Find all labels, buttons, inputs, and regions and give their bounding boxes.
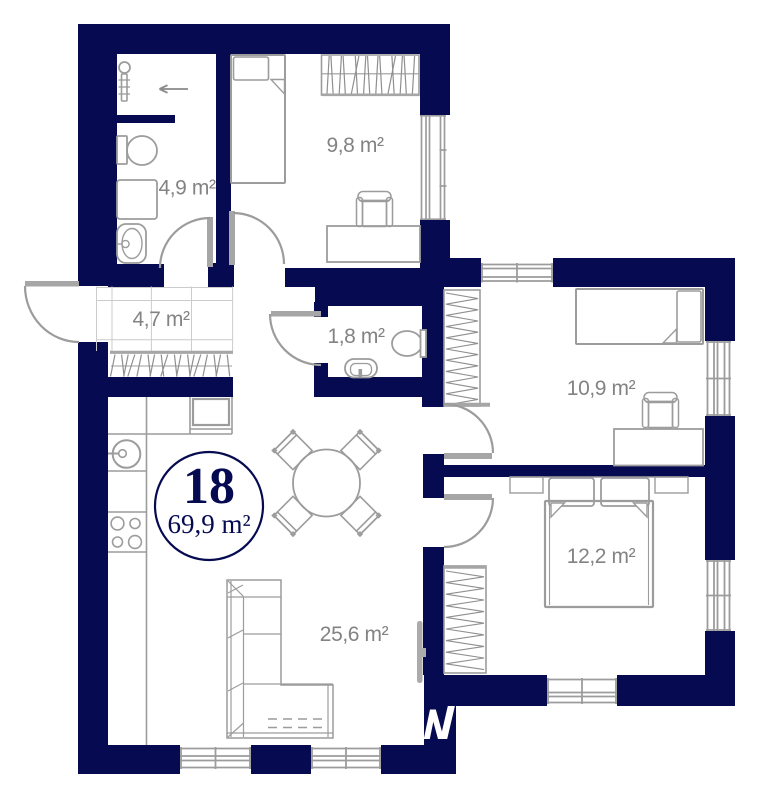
svg-text:4,9 m²: 4,9 m² [158, 177, 216, 200]
svg-text:69,9 m²: 69,9 m² [167, 509, 250, 539]
svg-text:10,9 m²: 10,9 m² [567, 377, 636, 400]
svg-text:18: 18 [183, 458, 235, 515]
svg-text:9,8 m²: 9,8 m² [326, 134, 384, 157]
svg-text:25,6 m²: 25,6 m² [320, 623, 389, 646]
svg-text:1,8 m²: 1,8 m² [327, 325, 385, 348]
svg-text:12,2 m²: 12,2 m² [567, 545, 636, 568]
svg-text:4,7 m²: 4,7 m² [132, 308, 190, 331]
